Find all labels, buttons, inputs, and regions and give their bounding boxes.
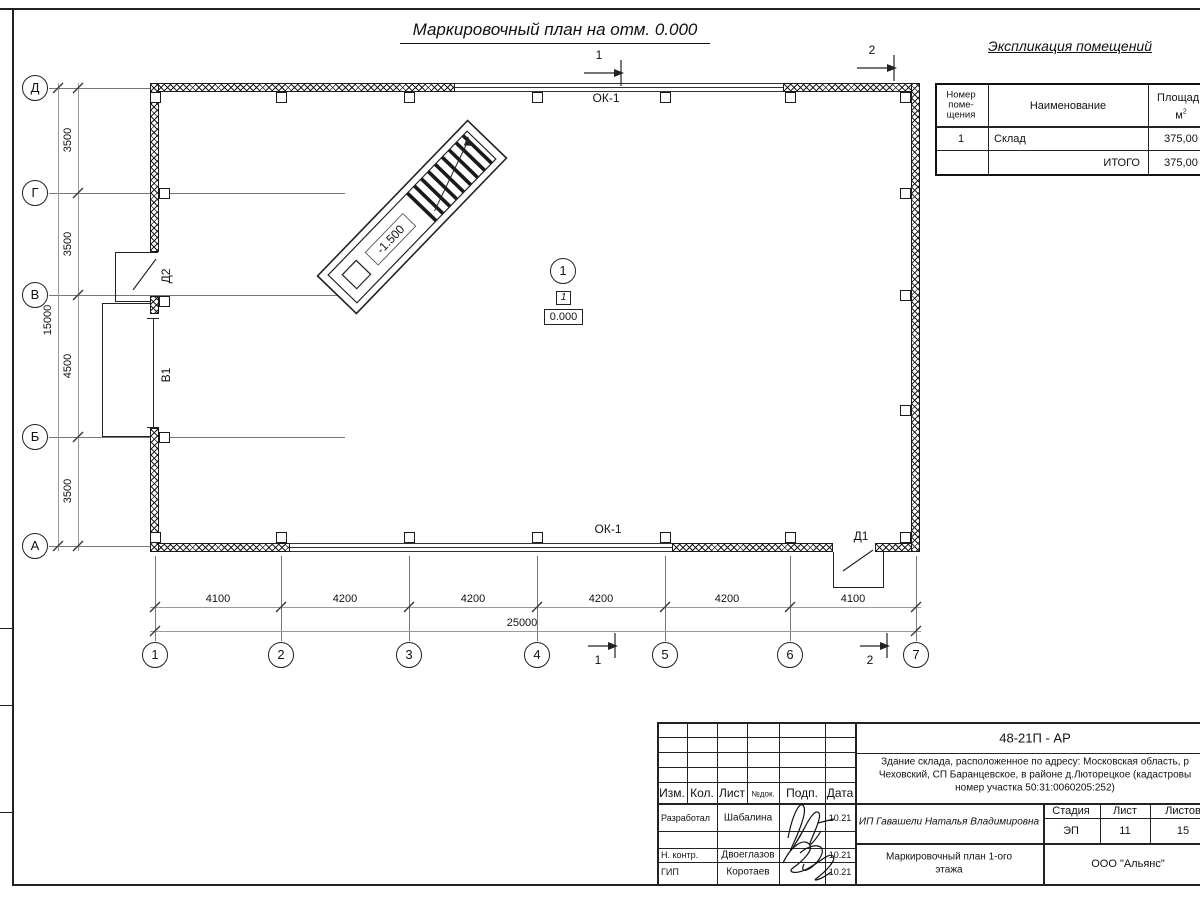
section-marker-2-bottom	[860, 633, 890, 658]
tb-company: ООО "Альянс"	[1091, 858, 1165, 870]
explication-total-area: 375,00	[1164, 157, 1198, 169]
explication-col-line-1	[988, 85, 989, 174]
tb-date-control: 10.21	[829, 850, 852, 860]
tb-role-gip: ГИП	[661, 867, 679, 877]
explication-col-area: Площадь	[1157, 92, 1200, 104]
tb-drawing-name-line2: этажа	[935, 865, 962, 876]
ramp-structure: -1.500	[318, 121, 507, 314]
tb-col-ndok: №док.	[751, 790, 774, 799]
tb-sheets-value: 15	[1177, 825, 1189, 837]
signature-control-gip	[783, 842, 834, 880]
tb-stage-value: ЭП	[1063, 825, 1079, 837]
tb-sheets-label: Листов	[1165, 805, 1200, 817]
tb-role-control: Н. контр.	[661, 850, 698, 860]
signature-developer	[788, 805, 834, 851]
explication-header-line	[937, 126, 1200, 128]
tb-col-kol: Кол.	[690, 786, 714, 800]
tb-sheet-label: Лист	[1113, 805, 1137, 817]
explication-row-num: 1	[958, 133, 964, 145]
tb-date-gip: 10.21	[829, 867, 852, 877]
door-d1-swing	[843, 550, 873, 571]
tb-document-code: 48-21П - АР	[999, 731, 1071, 746]
explication-row-area: 375,00	[1164, 133, 1198, 145]
explication-row-line	[937, 150, 1200, 151]
tb-col-list: Лист	[719, 786, 745, 800]
tb-name-control: Двоеглазов	[721, 850, 774, 861]
explication-total-label: ИТОГО	[1103, 157, 1140, 169]
door-d2-swing	[133, 259, 156, 290]
tb-sheet-value: 11	[1119, 825, 1130, 837]
explication-col-area-unit: м2	[1175, 109, 1186, 122]
tb-desc-line1: Здание склада, расположенное по адресу: …	[881, 757, 1189, 768]
section-marker-1-bottom	[588, 633, 618, 658]
explication-col-name: Наименование	[1030, 100, 1106, 112]
section-marker-2-top	[857, 55, 897, 81]
floor-level-box: 0.000	[544, 309, 583, 325]
tb-date-developer: 10.21	[829, 813, 852, 823]
room-tag-box: 1	[556, 291, 571, 305]
tb-col-data: Дата	[827, 786, 854, 800]
section-marker-1-top	[584, 60, 624, 86]
explication-row-name: Склад	[994, 133, 1026, 145]
explication-col-num-3: щения	[947, 110, 976, 121]
tb-name-developer: Шабалина	[724, 813, 772, 824]
tb-client: ИП Гавашели Наталья Владимировна	[859, 817, 1039, 828]
tb-name-gip: Коротаев	[726, 867, 769, 878]
tb-role-developer: Разработал	[661, 813, 710, 823]
tb-desc-line2: Чеховский, СП Баранцевское, в районе д.Л…	[879, 770, 1191, 781]
tb-drawing-name-line1: Маркировочный план 1-ого	[886, 852, 1012, 863]
tb-col-podp: Подп.	[786, 786, 818, 800]
tb-col-izm: Изм.	[659, 786, 685, 800]
room-number-circle: 1	[550, 258, 576, 284]
explication-col-line-2	[1148, 85, 1149, 174]
explication-title: Экспликация помещений	[960, 38, 1180, 54]
drawing-sheet: Маркировочный план на отм. 0.000	[0, 0, 1200, 900]
tb-stage-label: Стадия	[1052, 805, 1090, 817]
tb-desc-line3: номер участка 50:31:0060205:252)	[955, 783, 1115, 794]
